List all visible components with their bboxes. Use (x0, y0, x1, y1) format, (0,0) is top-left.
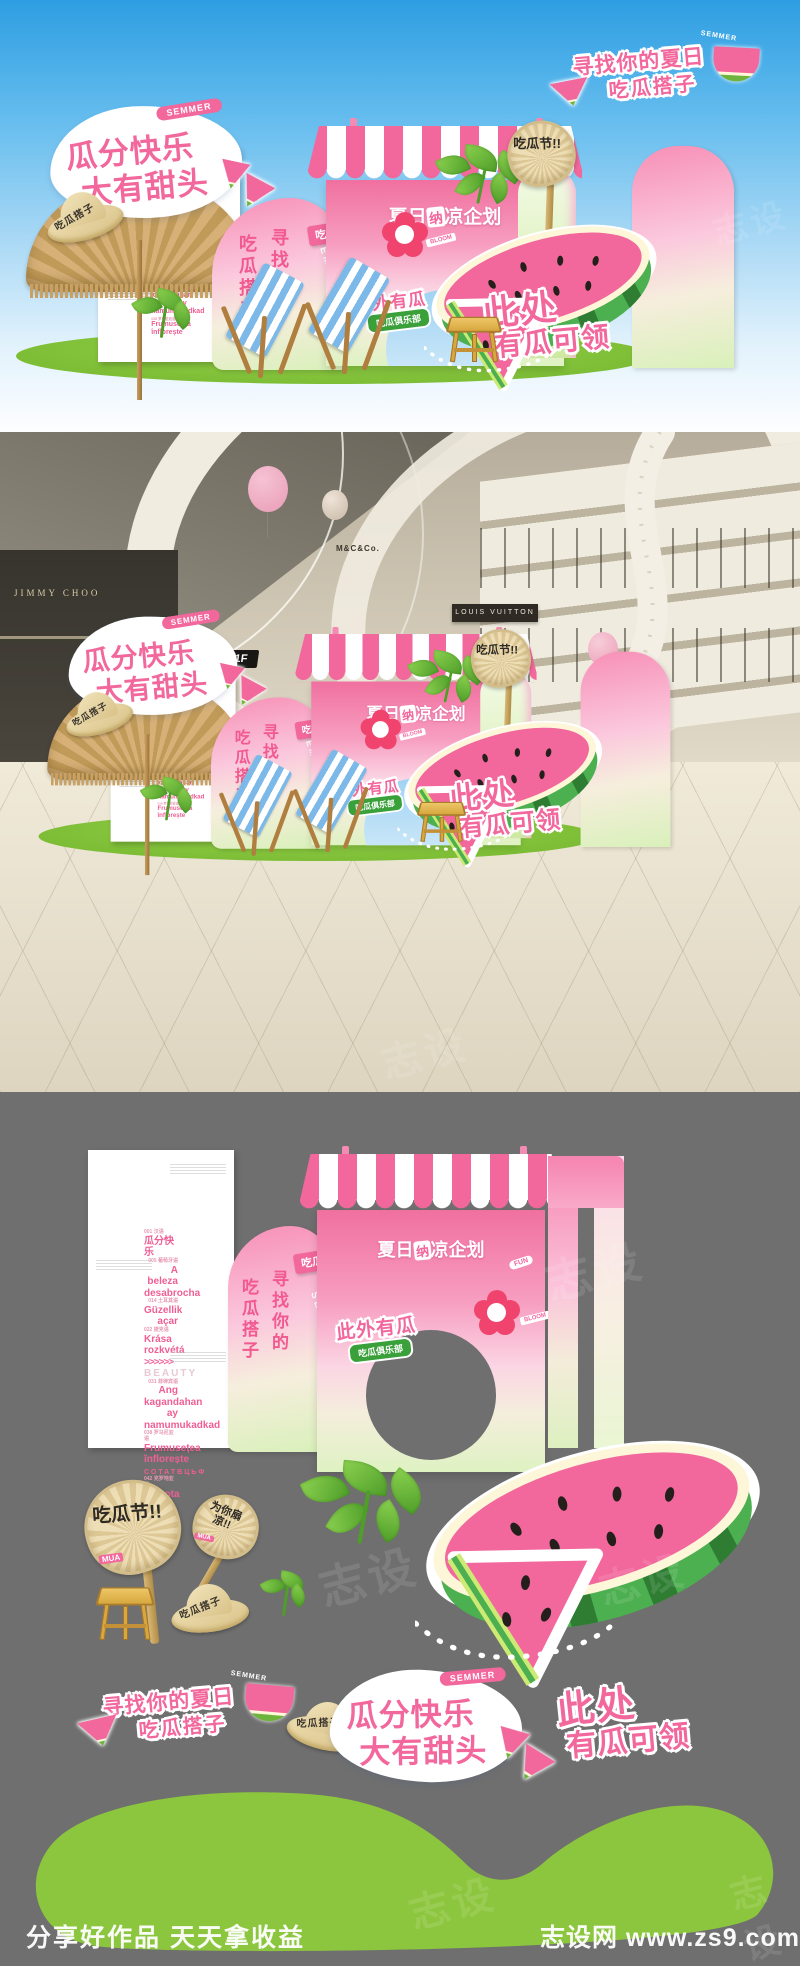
panel-item-text: Güzellik açar (144, 1305, 182, 1328)
watermelon-booth-design: 001 汉语瓜分快乐 005 葡萄牙语A beleza desabrocha G… (20, 76, 780, 392)
mint-leaves-icon (132, 290, 198, 346)
scene-flat-elements: 001 汉语瓜分快乐 005 葡萄牙语A beleza desabrocha 0… (0, 1092, 800, 1966)
micro-text-lines (170, 1164, 226, 1176)
deck-chair (290, 750, 382, 854)
scene-mall-photo: JIMMY CHOO M&C&Co. LOUIS VUITTON ◄ ··· 1… (0, 432, 800, 1092)
find-partner-badge: 寻找你的夏日 吃瓜搭子 SEMMER (83, 1675, 298, 1763)
panel-item-text: 瓜分快乐 (144, 1236, 174, 1259)
watermelon-slice-icon (76, 1714, 123, 1751)
watermelon-booth-design: 001 汉语瓜分快乐 005 葡萄牙语A beleza desabrocha G… (42, 590, 711, 868)
deck-chair (302, 258, 406, 376)
scene-sky-mockup: 寻找你的夏日 吃瓜搭子 SEMMER 001 汉语瓜分快乐 005 葡萄牙语A … (0, 0, 800, 432)
store-sign-center: M&C&Co. (336, 544, 380, 553)
mint-leaves-icon (141, 778, 199, 827)
wooden-stool (448, 314, 500, 364)
panel-item-label: 038 罗马尼亚语 (144, 1431, 178, 1443)
vertical-slogan-right: 寻找你的 (266, 1270, 291, 1354)
semmer-text: SEMMER (700, 30, 737, 43)
striped-awning (300, 1154, 562, 1200)
micro-text-lines (170, 1352, 226, 1364)
fan-text: 吃瓜节!! (513, 137, 561, 151)
micro-text-lines (96, 1260, 152, 1272)
watermelon-illustration (415, 1410, 771, 1692)
title-line2: 大有甜头 (359, 1725, 488, 1772)
wooden-stool (419, 799, 465, 843)
panel-item-text: >>>>>> (144, 1357, 173, 1368)
balloon-string (267, 512, 268, 538)
panel-item-text: A beleza desabrocha (144, 1265, 200, 1299)
title-sticker: SEMMER 瓜分快乐 大有甜头 (328, 1667, 524, 1786)
footer-slogan: 分享好作品 天天拿收益 (26, 1918, 305, 1954)
poster-canvas: 寻找你的夏日 吃瓜搭子 SEMMER 001 汉语瓜分快乐 005 葡萄牙语A … (0, 0, 800, 1966)
footer-site-link[interactable]: 志设网 www.zs9.com (540, 1918, 800, 1954)
flower-icon (382, 212, 428, 258)
lantern (322, 490, 348, 520)
mint-leaves-icon (262, 1572, 310, 1624)
claim-line2: 有瓜可领 (564, 1711, 691, 1766)
wooden-stool (98, 1584, 152, 1642)
panel-item-text: BEAUTY (144, 1368, 197, 1379)
pink-balloon (248, 466, 288, 512)
flower-icon (361, 710, 401, 750)
multilingual-panel: 001 汉语瓜分快乐 005 葡萄牙语A beleza desabrocha 0… (88, 1150, 234, 1448)
panel-item-text: Ang kagandahan ay namumukadkad (144, 1385, 220, 1431)
semmer-text: SEMMER (230, 1670, 267, 1683)
booth-title: 夏日纳凉企划 (317, 1236, 545, 1262)
flower-icon (474, 1290, 520, 1336)
vertical-slogan-left: 吃瓜搭子 (236, 1278, 261, 1362)
fan-text: 吃瓜节!! (476, 644, 518, 656)
panel-item-text: Frumusețea înflorește (144, 1443, 201, 1466)
watermelon-half-icon (243, 1683, 294, 1723)
find-badge-line2: 吃瓜搭子 (137, 1707, 227, 1744)
straw-hat: 吃瓜搭子 (166, 1573, 251, 1641)
